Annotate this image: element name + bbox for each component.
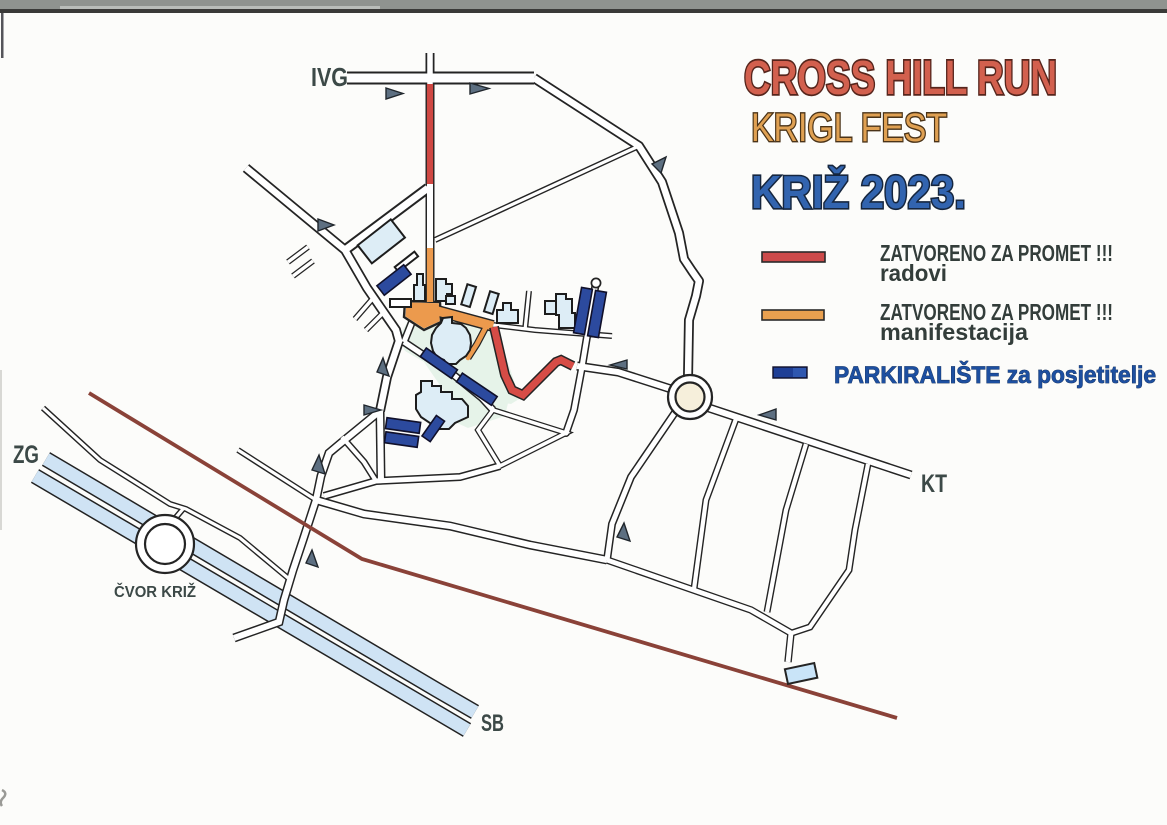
svg-text:IVG: IVG	[311, 62, 348, 92]
svg-text:SB: SB	[481, 710, 504, 737]
svg-text:manifestacija: manifestacija	[880, 319, 1028, 345]
svg-text:KRIŽ 2023.: KRIŽ 2023.	[751, 166, 966, 218]
svg-text:CROSS HILL RUN: CROSS HILL RUN	[744, 52, 1057, 105]
svg-text:KT: KT	[921, 470, 947, 498]
svg-text:ZG: ZG	[13, 441, 39, 469]
svg-text:ČVOR KRIŽ: ČVOR KRIŽ	[114, 582, 196, 601]
svg-text:PARKIRALIŠTE za posjetitelje: PARKIRALIŠTE za posjetitelje	[834, 361, 1156, 389]
svg-text:radovi: radovi	[880, 260, 947, 286]
svg-text:KRIGL FEST: KRIGL FEST	[751, 106, 947, 150]
